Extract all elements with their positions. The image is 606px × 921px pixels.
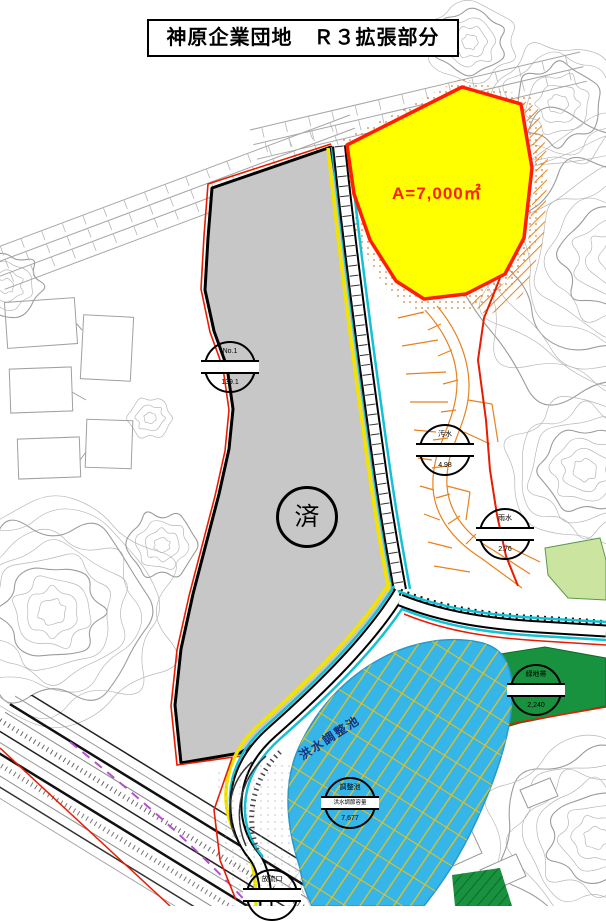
survey-marker-no1: No.1 139.1 [204,341,256,393]
light-green-area-polygon [545,538,606,600]
marker-top-label: 緑地帯 [512,671,560,678]
extension-area-label: A=7,000㎡ [392,179,482,204]
marker-band [201,360,259,374]
marker-top-label: 汚水 [421,431,469,438]
marker-bottom-label: 7,677 [326,815,374,822]
survey-marker-sewer: 汚水 4.98 [419,424,471,476]
survey-marker-storm: 雨水 2.76 [479,508,531,560]
site-plan-map [0,0,606,906]
marker-bottom-label: 4.98 [421,462,469,469]
survey-marker-outlet: 放流口 [246,869,298,921]
map-title: 神原企業団地 Ｒ３拡張部分 [147,19,459,57]
site-plan-page: { "title": "神原企業団地 Ｒ３拡張部分", "labels": { … [0,0,606,906]
marker-top-label: 雨水 [481,515,529,522]
marker-bottom-label: 139.1 [206,379,254,386]
marker-band [416,443,474,457]
marker-bottom-label: 2,240 [512,702,560,709]
marker-band [476,527,534,541]
access-road-east [398,591,606,645]
marker-band: 洪水調節容量 [321,796,379,810]
marker-bottom-label: 2.76 [481,546,529,553]
marker-top-label: No.1 [206,348,254,355]
survey-marker-pond: 調整池 洪水調節容量 7,677 [324,777,376,829]
marker-top-label: 調整池 [326,784,374,791]
completed-stamp: 済 [276,486,338,548]
marker-band [243,888,301,902]
survey-marker-greenbelt: 緑地帯 2,240 [510,664,562,716]
existing-lots [4,298,133,479]
marker-band [507,683,565,697]
marker-top-label: 放流口 [248,876,296,883]
